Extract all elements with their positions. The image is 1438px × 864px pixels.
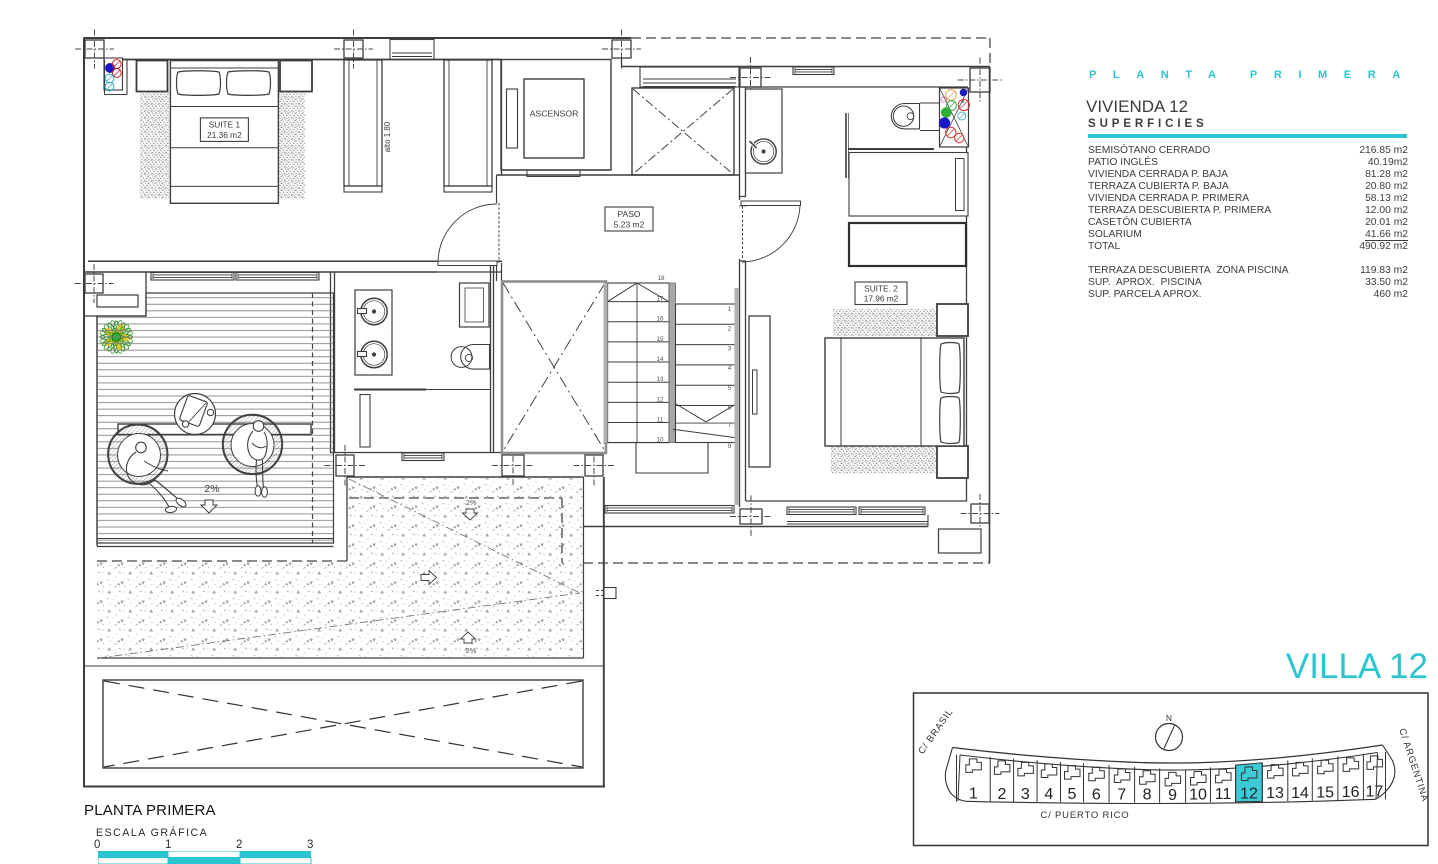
svg-text:8: 8 <box>1143 787 1152 804</box>
svg-text:9: 9 <box>1168 787 1177 804</box>
svg-text:6: 6 <box>1092 786 1101 803</box>
svg-text:2: 2 <box>997 786 1006 803</box>
svg-text:1: 1 <box>969 786 978 803</box>
svg-text:11: 11 <box>1215 786 1232 803</box>
svg-text:13: 13 <box>1266 785 1284 802</box>
svg-text:15: 15 <box>1316 784 1334 801</box>
svg-text:10: 10 <box>1189 786 1207 803</box>
svg-text:C/ ARGENTINA: C/ ARGENTINA <box>1396 727 1430 803</box>
svg-text:12: 12 <box>1240 786 1258 803</box>
svg-text:5: 5 <box>1068 786 1077 803</box>
svg-text:3: 3 <box>1021 786 1030 803</box>
svg-text:7: 7 <box>1117 786 1126 803</box>
svg-text:14: 14 <box>1291 785 1309 802</box>
svg-text:C/ PUERTO RICO: C/ PUERTO RICO <box>1041 810 1130 821</box>
svg-text:17: 17 <box>1366 784 1384 801</box>
svg-text:16: 16 <box>1342 784 1360 801</box>
svg-text:4: 4 <box>1044 786 1053 803</box>
svg-text:N: N <box>1166 713 1172 723</box>
svg-text:C/ BRASIL: C/ BRASIL <box>916 707 955 757</box>
